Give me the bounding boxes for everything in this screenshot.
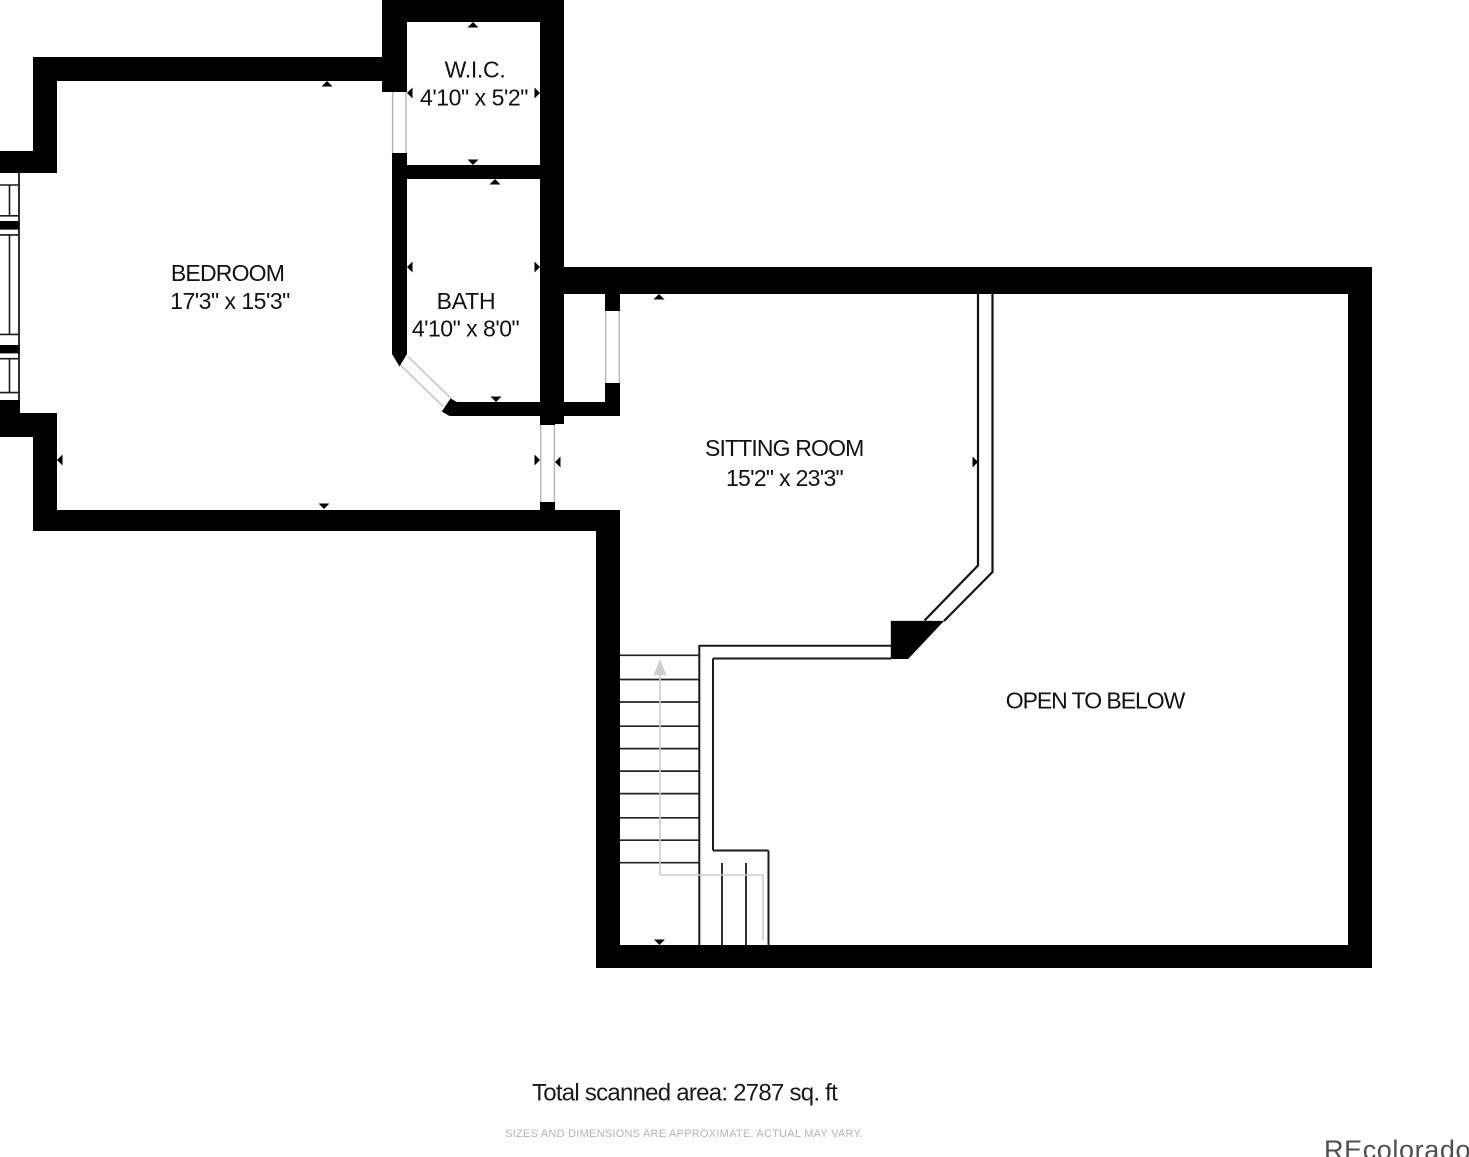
svg-text:SIZES AND DIMENSIONS ARE APPRO: SIZES AND DIMENSIONS ARE APPROXIMATE, AC… [505,1128,863,1140]
svg-text:15'2" x 23'3": 15'2" x 23'3" [726,465,844,491]
svg-text:SITTING ROOM: SITTING ROOM [705,435,863,461]
svg-text:REcolorado: REcolorado [1324,1135,1469,1157]
svg-text:4'10" x 5'2": 4'10" x 5'2" [420,84,528,110]
svg-text:OPEN TO BELOW: OPEN TO BELOW [1006,688,1186,714]
svg-text:BATH: BATH [437,288,496,314]
svg-text:Total scanned area: 2787 sq. f: Total scanned area: 2787 sq. ft [532,1079,838,1106]
svg-text:BEDROOM: BEDROOM [171,260,284,286]
svg-text:W.I.C.: W.I.C. [445,57,506,83]
svg-text:4'10" x 8'0": 4'10" x 8'0" [412,315,520,341]
svg-text:17'3" x 15'3": 17'3" x 15'3" [170,288,290,314]
